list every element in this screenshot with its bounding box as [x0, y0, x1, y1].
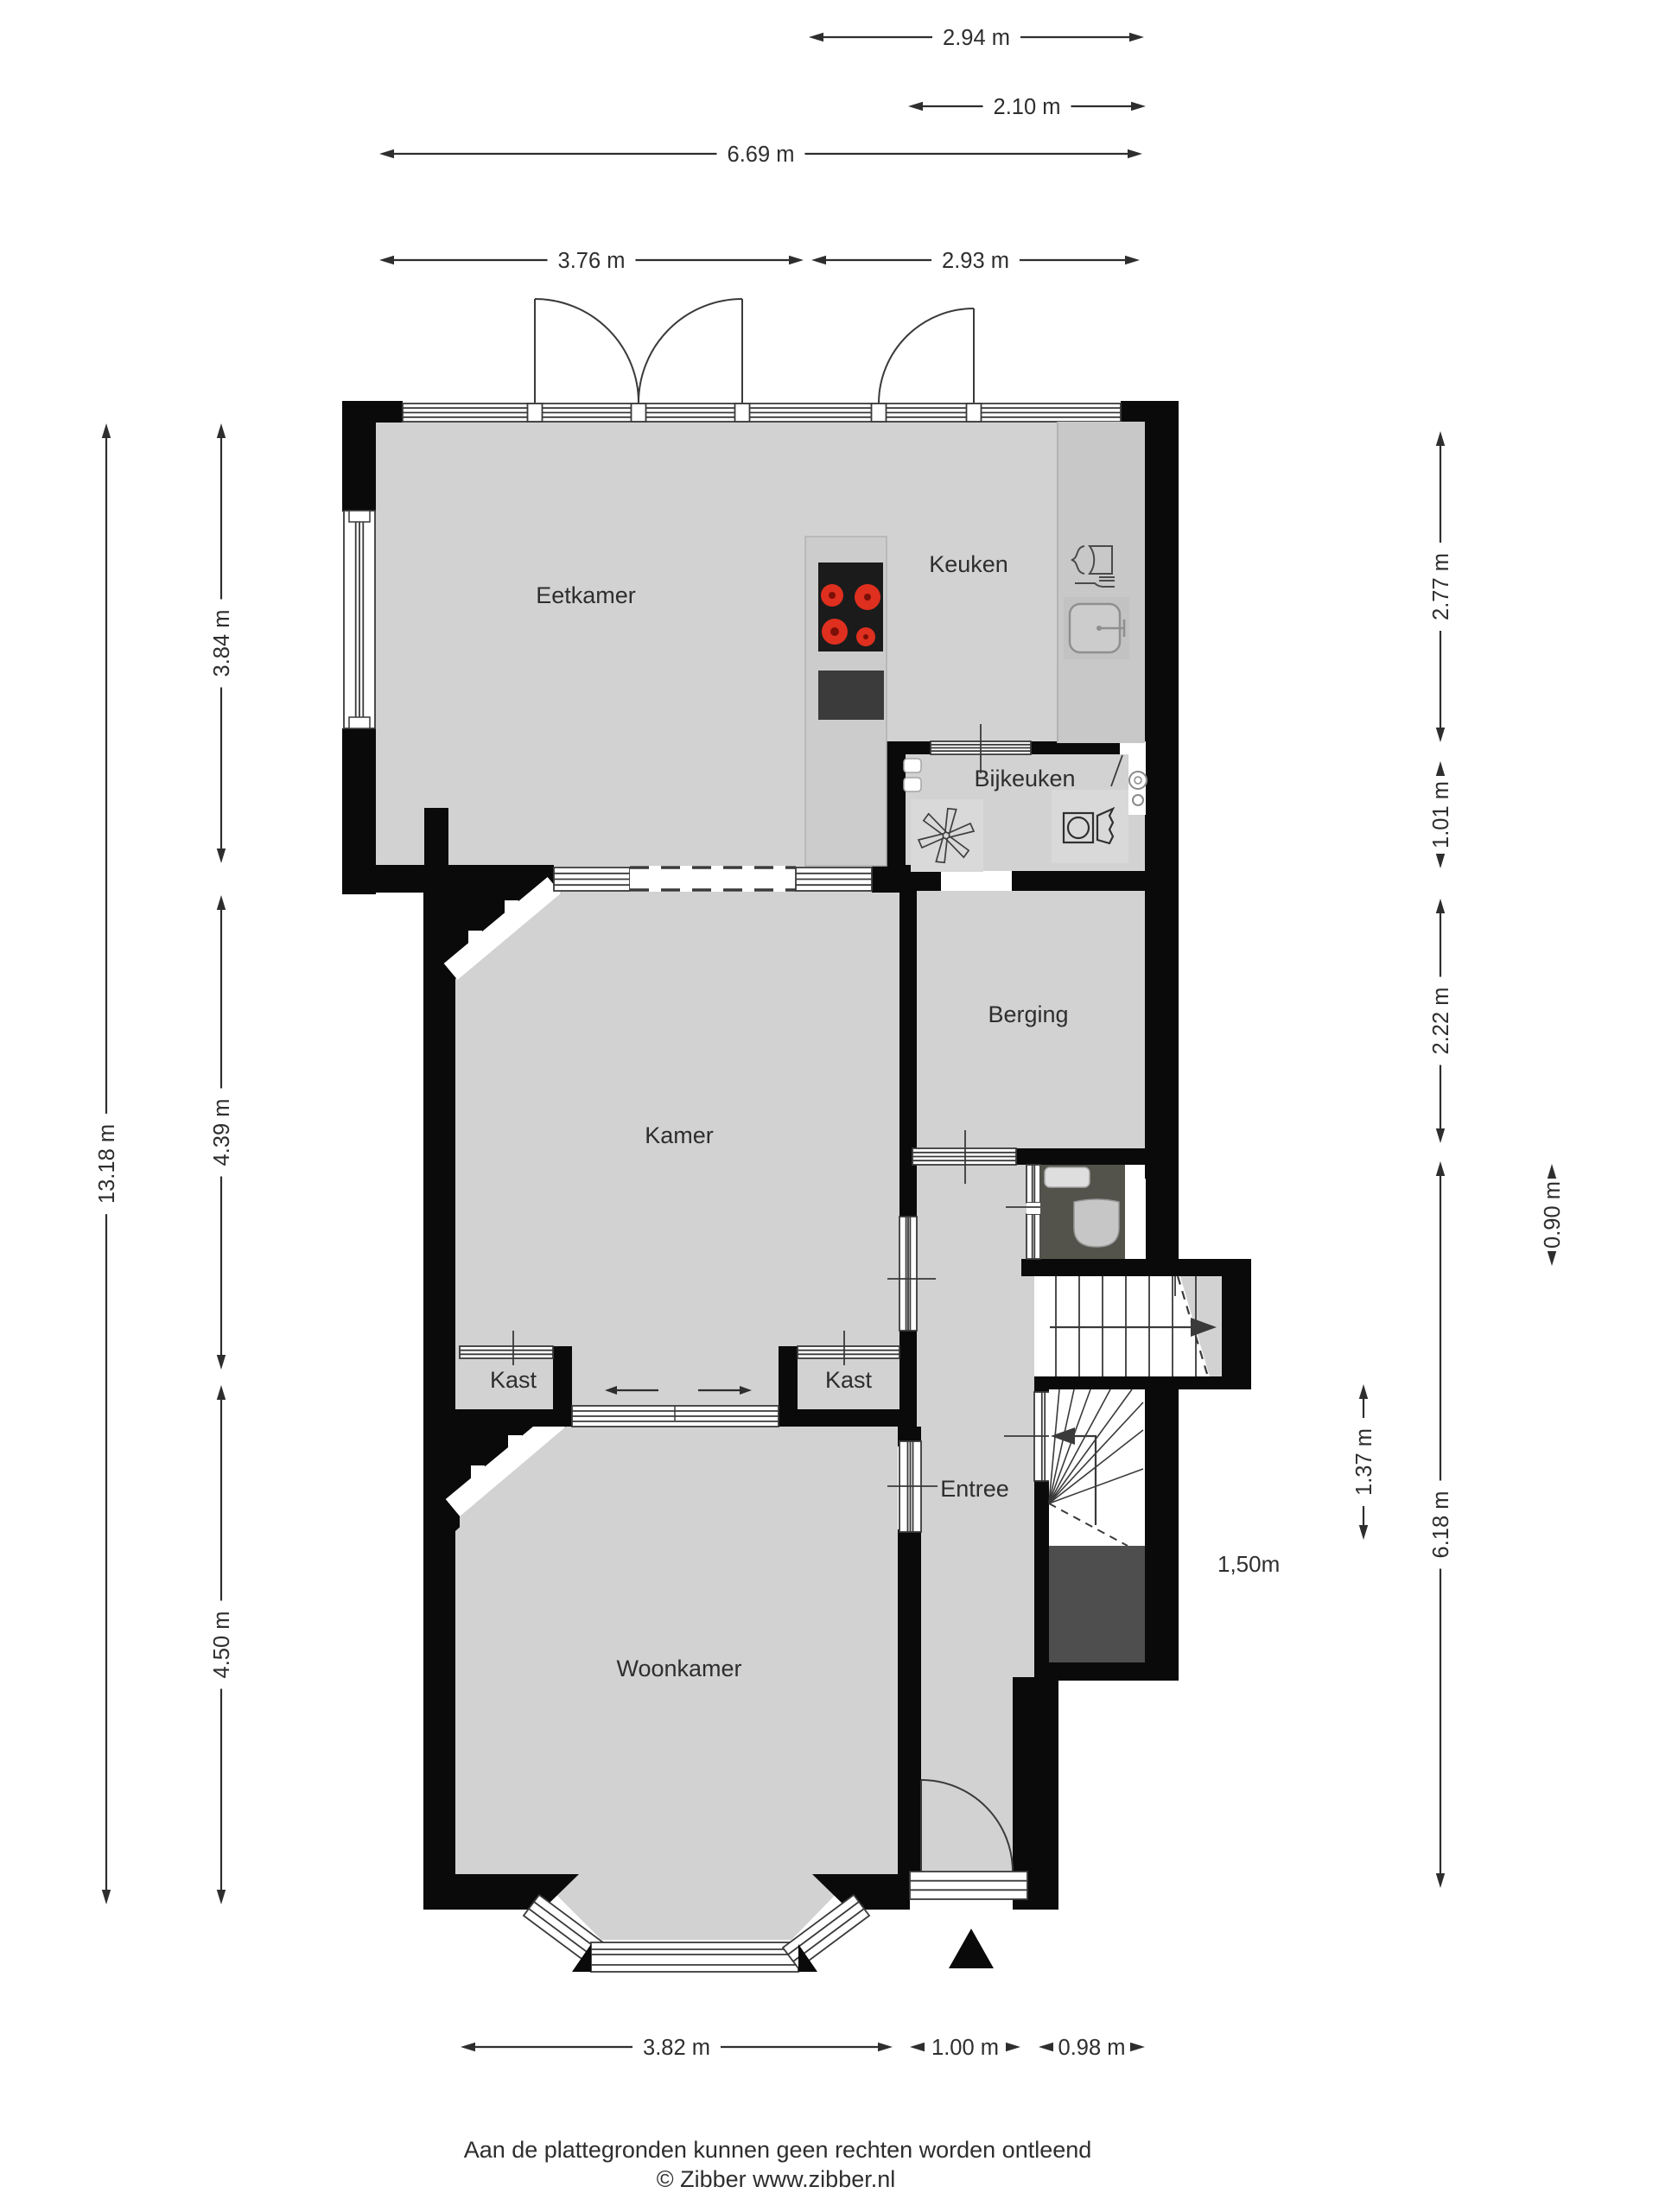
svg-text:Aan de plattegronden kunnen ge: Aan de plattegronden kunnen geen rechten…: [464, 2137, 1092, 2163]
svg-text:2.77 m: 2.77 m: [1429, 553, 1453, 620]
svg-text:1.37 m: 1.37 m: [1352, 1428, 1376, 1496]
svg-text:3.82 m: 3.82 m: [643, 2036, 710, 2060]
svg-text:1,50m: 1,50m: [1217, 1551, 1280, 1577]
svg-text:0.98 m: 0.98 m: [1058, 2036, 1126, 2060]
svg-text:4.39 m: 4.39 m: [210, 1099, 234, 1166]
svg-text:Kast: Kast: [490, 1367, 537, 1393]
svg-text:3.84 m: 3.84 m: [210, 610, 234, 677]
svg-text:Kast: Kast: [825, 1367, 873, 1393]
svg-text:13.18 m: 13.18 m: [95, 1124, 119, 1204]
svg-text:Entree: Entree: [940, 1476, 1009, 1502]
svg-text:Keuken: Keuken: [929, 551, 1008, 577]
svg-text:1.01 m: 1.01 m: [1429, 781, 1453, 849]
svg-text:4.50 m: 4.50 m: [210, 1611, 234, 1679]
svg-text:2.22 m: 2.22 m: [1429, 988, 1453, 1055]
svg-text:2.93 m: 2.93 m: [942, 249, 1009, 273]
svg-text:6.69 m: 6.69 m: [728, 143, 795, 167]
svg-text:2.94 m: 2.94 m: [943, 26, 1010, 50]
svg-text:Berging: Berging: [988, 1001, 1068, 1027]
svg-text:1.00 m: 1.00 m: [931, 2036, 999, 2060]
svg-text:© Zibber www.zibber.nl: © Zibber www.zibber.nl: [657, 2166, 896, 2192]
svg-text:2.10 m: 2.10 m: [994, 95, 1061, 119]
svg-text:6.18 m: 6.18 m: [1429, 1491, 1453, 1559]
svg-text:Bijkeuken: Bijkeuken: [974, 766, 1075, 791]
svg-text:3.76 m: 3.76 m: [558, 249, 626, 273]
svg-text:0.90 m: 0.90 m: [1541, 1181, 1565, 1249]
svg-text:Eetkamer: Eetkamer: [536, 582, 636, 608]
svg-text:Woonkamer: Woonkamer: [616, 1656, 741, 1681]
svg-text:Kamer: Kamer: [645, 1122, 714, 1148]
